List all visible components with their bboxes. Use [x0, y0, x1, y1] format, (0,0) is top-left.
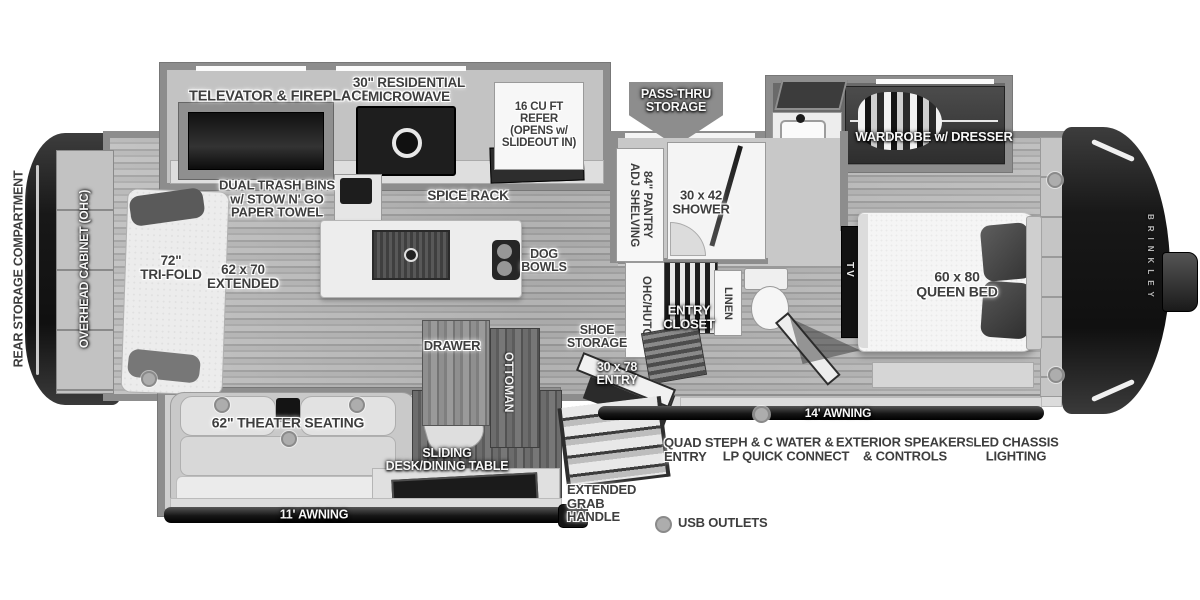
- theater-label: 62" THEATER SEATING: [212, 416, 364, 431]
- usb-legend-dot: [655, 516, 672, 533]
- hc-water-label: H & C WATER & LP QUICK CONNECT: [723, 435, 850, 462]
- refer-label: 16 CU FT REFER (OPENS w/ SLIDEOUT IN): [502, 102, 576, 150]
- bed-footboard: [858, 214, 868, 348]
- awning-14-label: 14' AWNING: [805, 407, 871, 419]
- extended-label: 62 x 70 EXTENDED: [207, 263, 279, 291]
- usb-outlet-dot: [281, 431, 297, 447]
- entry-closet-label: ENTRY CLOSET: [663, 303, 715, 330]
- bath-skylight: [774, 80, 847, 110]
- rear-storage-label: REAR STORAGE COMPARTMENT: [13, 171, 26, 368]
- shoe-storage-label: SHOE STORAGE: [567, 324, 627, 350]
- shoe-storage-bench: [641, 323, 707, 384]
- ottoman-label: OTTOMAN: [502, 352, 516, 412]
- linen-label: LINEN: [722, 287, 734, 320]
- dog-bowls-label: DOG BOWLS: [521, 248, 567, 274]
- usb-outlet-dot: [349, 397, 365, 413]
- usb-outlet-dot: [753, 406, 770, 423]
- island-faucet: [404, 248, 418, 262]
- kitchen-slide-window-1: [196, 66, 306, 71]
- overhead-cabinet-label: OVERHEAD CABINET (OHC): [78, 190, 90, 348]
- usb-outlet-dot: [214, 397, 230, 413]
- bedroom-slide-window: [876, 79, 994, 84]
- refer-label-box: 16 CU FT REFER (OPENS w/ SLIDEOUT IN): [494, 82, 584, 170]
- bedroom-bench: [872, 362, 1034, 388]
- dog-bowl-2: [497, 261, 512, 276]
- usb-outlet-dot: [1048, 367, 1064, 383]
- spice-rack-label: SPICE RACK: [427, 189, 508, 203]
- tv-label: TV: [844, 262, 855, 279]
- brand-wordmark: BRINKLEY: [1146, 214, 1155, 334]
- grab-handle-label: EXTENDED GRAB HANDLE: [567, 483, 636, 524]
- exterior-speakers-label: EXTERIOR SPEAKERS & CONTROLS: [836, 435, 974, 462]
- vanity-faucet: [796, 114, 805, 123]
- fireplace-screen: [188, 112, 324, 170]
- pass-thru-storage-label: PASS-THRU STORAGE: [641, 88, 711, 114]
- usb-outlet-dot: [1047, 172, 1063, 188]
- usb-outlet-dot: [141, 371, 157, 387]
- dog-bowl-1: [497, 244, 512, 259]
- pantry-box: 84" PANTRY ADJ SHELVING: [616, 148, 664, 262]
- wardrobe-label: WARDROBE w/ DRESSER: [855, 130, 1012, 144]
- awning-14-bar: 14' AWNING: [598, 406, 1044, 420]
- led-chassis-label: LED CHASSIS LIGHTING: [973, 435, 1058, 462]
- bed-headboard: [1026, 216, 1042, 350]
- kitchen-slide-window-2: [336, 66, 466, 71]
- sliding-desk-label: SLIDING DESK/DINING TABLE: [386, 447, 509, 473]
- rv-floorplan: BRINKLEY 16 CU FT REFER (OPENS w/ SLIDEO…: [0, 0, 1200, 600]
- awning-11-bar: 11' AWNING: [164, 507, 564, 523]
- televator-label: TELEVATOR & FIREPLACE: [189, 89, 371, 104]
- drawer-cabinet: [422, 320, 490, 426]
- microwave-label: 30" RESIDENTIAL MICROWAVE: [353, 76, 465, 104]
- range-burner: [392, 128, 422, 158]
- drawer-label: DRAWER: [424, 339, 481, 353]
- hitch-pin: [1162, 252, 1198, 312]
- tri-fold-label: 72" TRI-FOLD: [140, 254, 201, 282]
- trash-label: DUAL TRASH BINS w/ STOW N' GO PAPER TOWE…: [219, 179, 335, 220]
- awning-11-label: 11' AWNING: [280, 509, 349, 522]
- queen-bed-label: 60 x 80 QUEEN BED: [916, 269, 997, 298]
- entry-door-label: 30 x 78 ENTRY: [597, 361, 638, 387]
- pantry-label: 84" PANTRY ADJ SHELVING: [627, 163, 653, 247]
- shower-label: 30 x 42 SHOWER: [672, 188, 729, 215]
- wall-bath-bedroom: [840, 131, 848, 231]
- linen-box: LINEN: [714, 270, 742, 336]
- trash-cabinet-top: [340, 178, 372, 204]
- usb-outlets-label: USB OUTLETS: [678, 516, 768, 530]
- rear-cap-highlight: [36, 165, 39, 375]
